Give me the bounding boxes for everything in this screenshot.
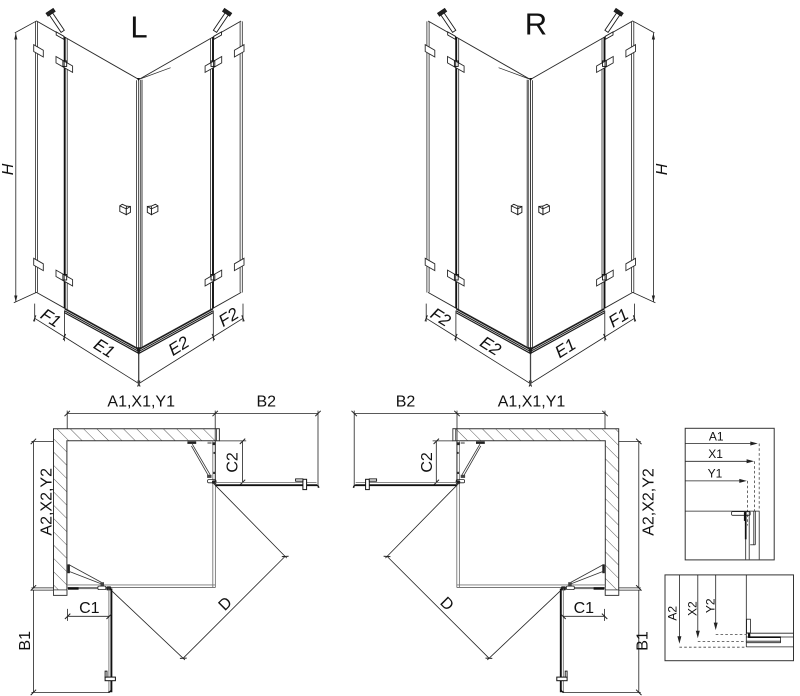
svg-text:B2: B2: [396, 394, 416, 411]
svg-text:C1: C1: [79, 600, 100, 617]
svg-text:A1: A1: [709, 429, 724, 443]
svg-text:F2: F2: [427, 304, 454, 331]
svg-text:X1: X1: [708, 447, 723, 461]
svg-text:H: H: [0, 163, 17, 175]
svg-text:D: D: [436, 594, 456, 614]
svg-text:R: R: [525, 7, 547, 42]
svg-text:F1: F1: [37, 305, 64, 332]
svg-text:A1,X1,Y1: A1,X1,Y1: [107, 394, 175, 411]
svg-text:L: L: [130, 10, 147, 45]
svg-text:Y2: Y2: [704, 598, 718, 613]
svg-text:B1: B1: [635, 631, 652, 651]
svg-text:F1: F1: [605, 305, 632, 332]
svg-text:A1,X1,Y1: A1,X1,Y1: [498, 394, 566, 411]
svg-text:B1: B1: [17, 631, 34, 651]
svg-text:C2: C2: [224, 452, 241, 473]
svg-text:A2,X2,Y2: A2,X2,Y2: [640, 468, 657, 536]
svg-text:D: D: [216, 594, 236, 614]
svg-text:Y1: Y1: [708, 467, 723, 481]
svg-text:C2: C2: [419, 452, 436, 473]
svg-text:C1: C1: [574, 600, 595, 617]
svg-text:B2: B2: [257, 394, 277, 411]
svg-text:X2: X2: [686, 601, 700, 616]
svg-text:A2: A2: [666, 606, 680, 621]
svg-text:A2,X2,Y2: A2,X2,Y2: [38, 468, 55, 536]
svg-text:F2: F2: [215, 304, 242, 331]
svg-text:H: H: [654, 163, 671, 175]
